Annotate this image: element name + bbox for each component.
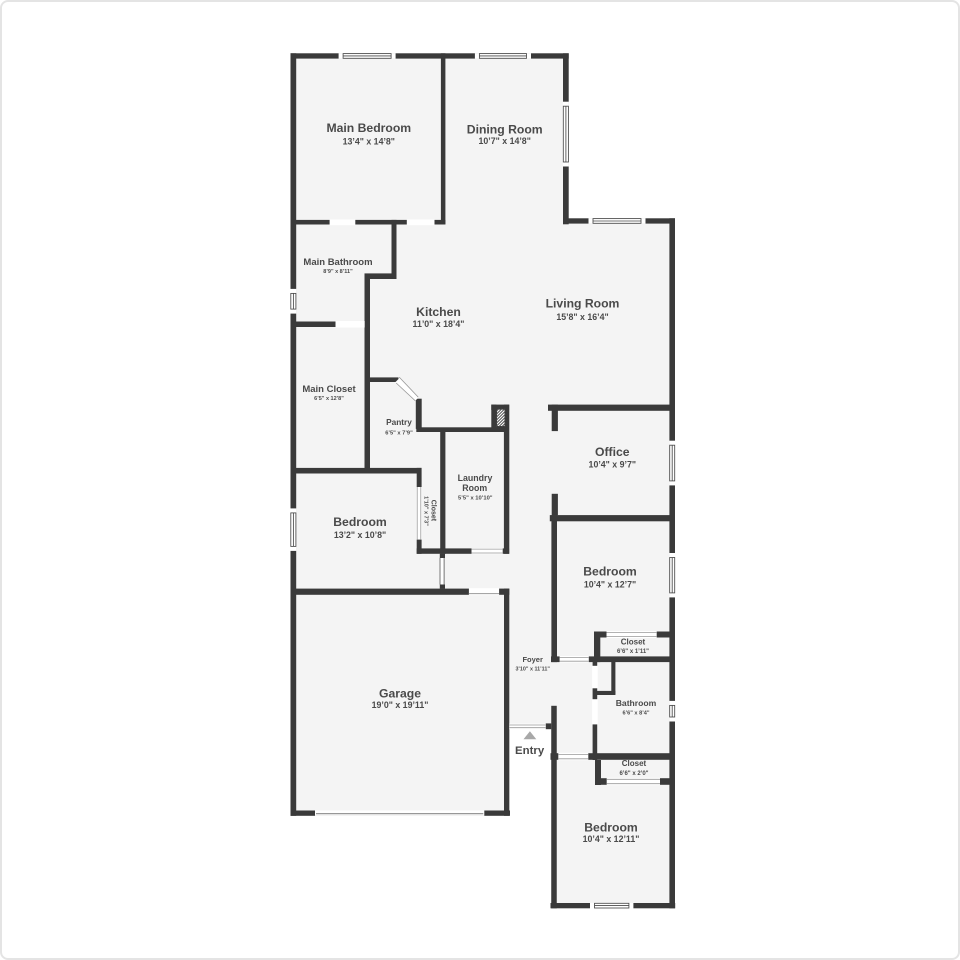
svg-text:Living Room: Living Room [546,297,620,311]
svg-text:15’8" x 16’4": 15’8" x 16’4" [556,312,608,322]
svg-text:Foyer: Foyer [522,655,543,664]
svg-text:Main Bedroom: Main Bedroom [326,121,411,135]
svg-text:Closet: Closet [622,759,647,768]
svg-text:6’6" x 1’11": 6’6" x 1’11" [617,649,649,655]
svg-text:Pantry: Pantry [386,417,412,427]
svg-text:Bedroom: Bedroom [584,820,638,834]
svg-text:Dining Room: Dining Room [467,123,543,137]
svg-text:10’4" x 9’7": 10’4" x 9’7" [589,459,636,469]
svg-text:11’0" x 18’4": 11’0" x 18’4" [413,319,465,329]
svg-text:3’10" x 11’11": 3’10" x 11’11" [515,667,550,673]
svg-text:Bedroom: Bedroom [333,515,387,529]
svg-text:5’5" x 10’10": 5’5" x 10’10" [458,495,493,501]
svg-text:Main Closet: Main Closet [302,384,356,395]
svg-text:6’5" x 12’8": 6’5" x 12’8" [314,396,344,402]
svg-text:Room: Room [462,483,487,493]
svg-text:Closet: Closet [429,500,436,522]
svg-text:1’10" x 7’3": 1’10" x 7’3" [423,496,429,526]
svg-text:13’2" x 10’8": 13’2" x 10’8" [334,530,386,540]
svg-text:6’6" x 2’0": 6’6" x 2’0" [619,771,648,777]
svg-text:Entry: Entry [515,745,545,757]
svg-text:10’4" x 12’7": 10’4" x 12’7" [584,579,636,589]
svg-text:13’4" x 14’8": 13’4" x 14’8" [343,137,395,147]
svg-text:Kitchen: Kitchen [416,305,461,319]
svg-text:Bedroom: Bedroom [583,565,637,579]
svg-text:Closet: Closet [621,637,646,646]
svg-text:Main Bathroom: Main Bathroom [303,257,372,268]
svg-text:6’5" x 7’9": 6’5" x 7’9" [385,431,413,437]
svg-text:Office: Office [595,445,630,459]
svg-text:6’6" x 8’4": 6’6" x 8’4" [622,711,649,717]
svg-text:Laundry: Laundry [458,473,493,483]
svg-text:Garage: Garage [379,686,421,700]
svg-text:8’9" x 8’11": 8’9" x 8’11" [323,269,353,275]
svg-text:10’7" x 14’8": 10’7" x 14’8" [479,136,531,146]
svg-text:10’4" x 12’11": 10’4" x 12’11" [583,834,640,844]
svg-text:Bathroom: Bathroom [616,698,657,708]
svg-text:19’0" x 19’11": 19’0" x 19’11" [372,700,429,710]
